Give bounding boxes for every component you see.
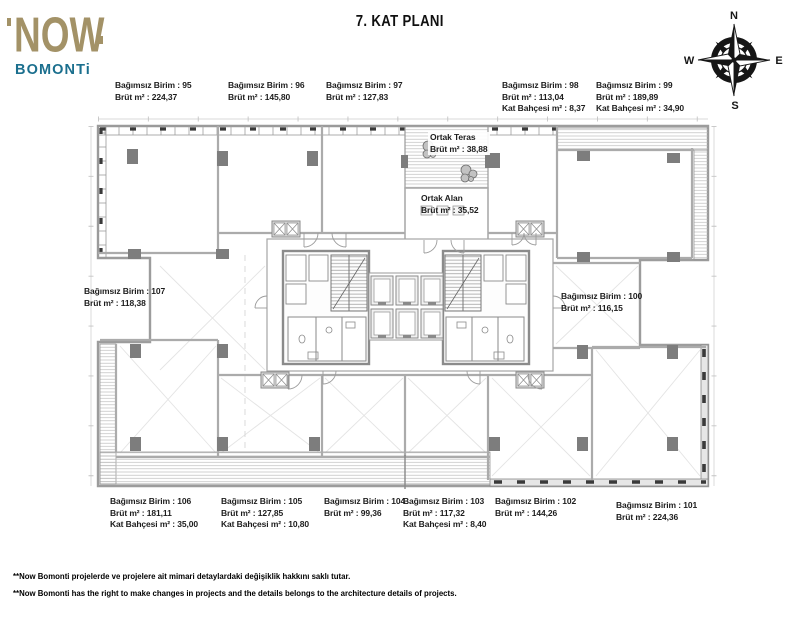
- unit-label-107: Bağımsız Birim : 107 Brüt m² : 118,38: [84, 286, 165, 309]
- unit-label-103: Bağımsız Birim : 103 Brüt m² : 117,32 Ka…: [403, 496, 486, 531]
- area-name: Ortak Teras: [430, 132, 488, 144]
- unit-brut: Brüt m² : 113,04: [502, 92, 585, 104]
- wc-left: [288, 317, 366, 361]
- unit-label-95: Bağımsız Birim : 95 Brüt m² : 224,37: [115, 80, 192, 103]
- compass-w: W: [684, 55, 695, 67]
- unit-name: Bağımsız Birim : 99: [596, 80, 684, 92]
- unit-garden: Kat Bahçesi m² : 10,80: [221, 519, 309, 531]
- compass-rose: [697, 23, 771, 97]
- stairs-left: [331, 255, 367, 311]
- unit-name: Bağımsız Birim : 95: [115, 80, 192, 92]
- unit-garden: Kat Bahçesi m² : 35,00: [110, 519, 198, 531]
- unit-label-106: Bağımsız Birim : 106 Brüt m² : 181,11 Ka…: [110, 496, 198, 531]
- unit-name: Bağımsız Birim : 100: [561, 291, 642, 303]
- unit-brut: Brüt m² : 144,26: [495, 508, 576, 520]
- unit-label-98: Bağımsız Birim : 98 Brüt m² : 113,04 Kat…: [502, 80, 585, 115]
- unit-label-97: Bağımsız Birim : 97 Brüt m² : 127,83: [326, 80, 403, 103]
- unit-brut: Brüt m² : 145,80: [228, 92, 305, 104]
- unit-label-105: Bağımsız Birim : 105 Brüt m² : 127,85 Ka…: [221, 496, 309, 531]
- page-title: 7. KAT PLANI: [0, 13, 800, 31]
- unit-label-104: Bağımsız Birim : 104 Brüt m² : 99,36: [324, 496, 405, 519]
- unit-brut: Brüt m² : 224,36: [616, 512, 697, 524]
- unit-brut: Brüt m² : 181,11: [110, 508, 198, 520]
- unit-brut: Brüt m² : 118,38: [84, 298, 165, 310]
- compass-n: N: [730, 10, 738, 22]
- compass-icon: N E S W: [684, 8, 784, 112]
- unit-garden: Kat Bahçesi m² : 34,90: [596, 103, 684, 115]
- unit-name: Bağımsız Birim : 107: [84, 286, 165, 298]
- unit-name: Bağımsız Birim : 96: [228, 80, 305, 92]
- unit-name: Bağımsız Birim : 102: [495, 496, 576, 508]
- unit-brut: Brüt m² : 127,83: [326, 92, 403, 104]
- unit-name: Bağımsız Birim : 101: [616, 500, 697, 512]
- ortak-teras-label: Ortak Teras Brüt m² : 38,88: [428, 132, 490, 155]
- unit-brut: Brüt m² : 116,15: [561, 303, 642, 315]
- unit-brut: Brüt m² : 127,85: [221, 508, 309, 520]
- wc-right: [446, 317, 524, 361]
- logo-bomonti-text: BOMONTi: [15, 62, 91, 78]
- unit-name: Bağımsız Birim : 103: [403, 496, 486, 508]
- unit-label-100: Bağımsız Birim : 100 Brüt m² : 116,15: [561, 291, 642, 314]
- area-brut: Brüt m² : 35,52: [421, 205, 479, 217]
- area-brut: Brüt m² : 38,88: [430, 144, 488, 156]
- unit-name: Bağımsız Birim : 104: [324, 496, 405, 508]
- ortak-alan-label: Ortak Alan Brüt m² : 35,52: [421, 193, 479, 216]
- unit-name: Bağımsız Birim : 106: [110, 496, 198, 508]
- unit-brut: Brüt m² : 189,89: [596, 92, 684, 104]
- unit-label-102: Bağımsız Birim : 102 Brüt m² : 144,26: [495, 496, 576, 519]
- elevator-bank: [369, 273, 443, 340]
- disclaimer-turkish: **Now Bomonti projelerde ve projelere ai…: [13, 571, 350, 581]
- logo-quote-right-icon: [99, 36, 103, 44]
- floor-plan-page: NOW BOMONTi 7. KAT PLANI: [0, 0, 800, 622]
- unit-garden: Kat Bahçesi m² : 8,37: [502, 103, 585, 115]
- compass-e: E: [775, 55, 782, 67]
- unit-brut: Brüt m² : 99,36: [324, 508, 405, 520]
- area-name: Ortak Alan: [421, 193, 479, 205]
- unit-label-101: Bağımsız Birim : 101 Brüt m² : 224,36: [616, 500, 697, 523]
- disclaimer-english: **Now Bomonti has the right to make chan…: [13, 588, 457, 598]
- unit-label-96: Bağımsız Birim : 96 Brüt m² : 145,80: [228, 80, 305, 103]
- unit-name: Bağımsız Birim : 105: [221, 496, 309, 508]
- compass-s: S: [731, 100, 738, 112]
- stairs-right: [445, 255, 481, 311]
- unit-label-99: Bağımsız Birim : 99 Brüt m² : 189,89 Kat…: [596, 80, 684, 115]
- unit-brut: Brüt m² : 117,32: [403, 508, 486, 520]
- core-block: [267, 239, 553, 371]
- unit-name: Bağımsız Birim : 97: [326, 80, 403, 92]
- unit-garden: Kat Bahçesi m² : 8,40: [403, 519, 486, 531]
- unit-brut: Brüt m² : 224,37: [115, 92, 192, 104]
- unit-name: Bağımsız Birim : 98: [502, 80, 585, 92]
